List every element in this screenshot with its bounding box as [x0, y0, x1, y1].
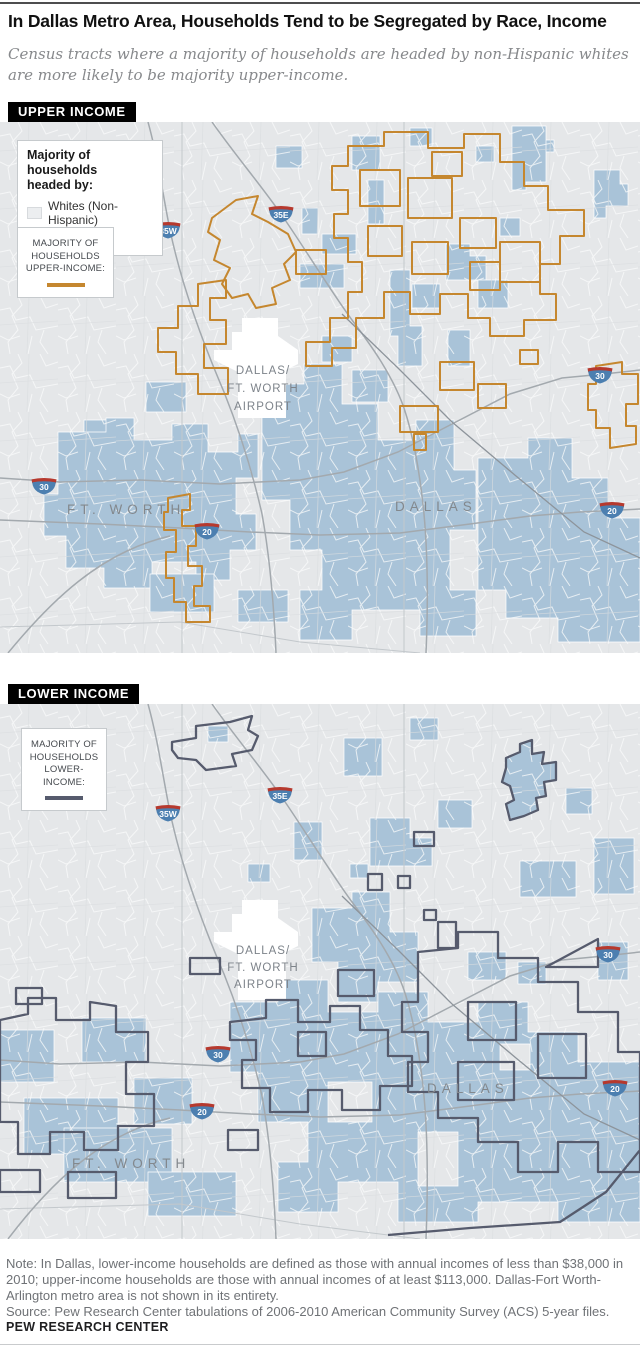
airport-label-line-1: DALLAS/: [236, 945, 290, 957]
lower-income-line-swatch: [45, 796, 83, 800]
shield-20-west: 20: [197, 1107, 207, 1117]
bottom-rule: [0, 1344, 640, 1345]
airport-label-line-2: FT. WORTH: [227, 383, 298, 395]
shield-30-west: 30: [39, 482, 49, 492]
lower-income-map: FT. WORTH DALLAS DALLAS/ FT. WORTH AIRPO…: [0, 704, 640, 1239]
legend-item-whites: Whites (Non-Hispanic): [27, 199, 153, 227]
source-text: Source: Pew Research Center tabulations …: [6, 1304, 636, 1320]
shield-35e: 35E: [272, 791, 287, 801]
upper-income-legend-line-3: UPPER-INCOME:: [20, 263, 111, 276]
shield-30-west: 30: [213, 1050, 223, 1060]
race-legend-title-line-2: headed by:: [27, 178, 93, 192]
subtitle-line-1: Census tracts where a majority of househ…: [8, 44, 632, 65]
note-text: Note: In Dallas, lower-income households…: [6, 1256, 636, 1304]
pew-dallas-segregation-graphic: In Dallas Metro Area, Households Tend to…: [0, 0, 640, 1355]
white-tract-swatch: [27, 207, 42, 219]
ft-worth-label: FT. WORTH: [72, 1156, 190, 1171]
ft-worth-label: FT. WORTH: [67, 502, 185, 517]
lower-income-legend-line-1: MAJORITY OF: [24, 739, 104, 752]
upper-income-tag: UPPER INCOME: [8, 102, 136, 122]
airport-label-line-2: FT. WORTH: [227, 962, 298, 974]
shield-30-east: 30: [603, 950, 613, 960]
legend-item-whites-label: Whites (Non-Hispanic): [48, 199, 153, 227]
race-legend-title-line-1: Majority of households: [27, 148, 97, 177]
race-legend-title: Majority of households headed by:: [27, 148, 153, 193]
airport-label-line-3: AIRPORT: [234, 979, 292, 991]
upper-income-map: FT. WORTH DALLAS DALLAS/ FT. WORTH AIRPO…: [0, 122, 640, 653]
lower-income-tag: LOWER INCOME: [8, 684, 139, 704]
upper-income-legend: MAJORITY OF HOUSEHOLDS UPPER-INCOME:: [17, 227, 114, 298]
upper-income-legend-line-2: HOUSEHOLDS: [20, 251, 111, 264]
shield-30-east: 30: [595, 371, 605, 381]
upper-income-line-swatch: [47, 283, 85, 287]
airport-label-line-1: DALLAS/: [236, 365, 290, 377]
airport-label-line-3: AIRPORT: [234, 401, 292, 413]
dallas-label: DALLAS: [395, 499, 477, 514]
lower-income-legend-line-2: HOUSEHOLDS: [24, 752, 104, 765]
shield-20-east: 20: [610, 1084, 620, 1094]
top-rule: [0, 2, 640, 4]
shield-35w: 35W: [159, 809, 177, 819]
dallas-label: DALLAS: [427, 1081, 509, 1096]
subtitle-line-2: are more likely to be majority upper-inc…: [8, 65, 632, 86]
footnote: Note: In Dallas, lower-income households…: [6, 1256, 636, 1320]
lower-income-legend-line-3: LOWER-INCOME:: [24, 764, 104, 789]
shield-20-west: 20: [202, 527, 212, 537]
lower-income-legend: MAJORITY OF HOUSEHOLDS LOWER-INCOME:: [21, 728, 107, 811]
pew-research-center-brand: PEW RESEARCH CENTER: [6, 1320, 169, 1334]
upper-income-legend-line-1: MAJORITY OF: [20, 238, 111, 251]
shield-20-east: 20: [607, 506, 617, 516]
page-title: In Dallas Metro Area, Households Tend to…: [8, 11, 632, 32]
shield-35e: 35E: [273, 210, 288, 220]
page-subtitle: Census tracts where a majority of househ…: [8, 44, 632, 86]
